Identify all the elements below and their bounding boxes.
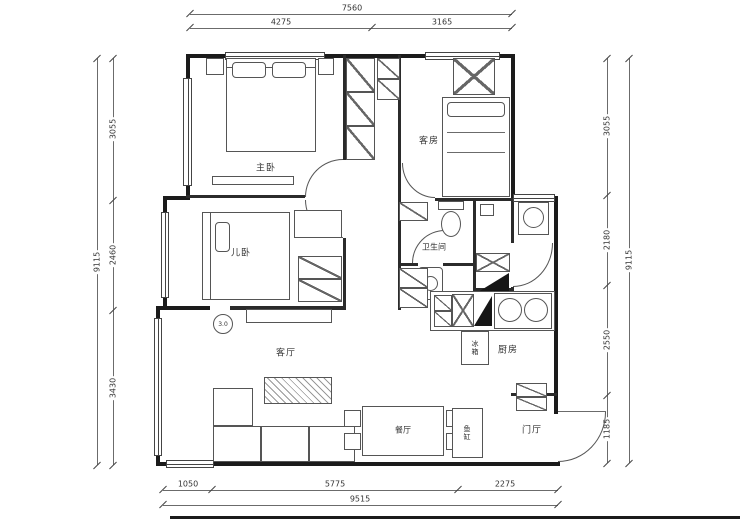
dim-label-bottom-seg2: 5775	[323, 480, 347, 489]
wall	[343, 238, 346, 308]
wall	[511, 54, 515, 200]
fish-tank-label: 鱼缸	[462, 425, 472, 441]
wardrobe	[298, 256, 342, 279]
stove-burner	[498, 298, 522, 322]
door-arc-master	[305, 159, 343, 197]
wardrobe	[346, 126, 375, 160]
hall-cabinet	[399, 288, 428, 308]
window	[513, 194, 555, 202]
fridge-label: 冰箱	[470, 340, 480, 356]
room-label-dining: 餐厅	[395, 425, 411, 436]
wardrobe	[346, 92, 375, 126]
kitchen-cabinet	[452, 294, 474, 327]
door-leaf-entry	[558, 411, 606, 412]
kitchen-cabinet	[434, 295, 452, 311]
dim-label-left-total: 9115	[93, 250, 102, 274]
window	[183, 78, 192, 186]
dim-label-right-total: 9115	[625, 248, 634, 272]
dim-line-top-total	[190, 14, 512, 15]
bed-line	[447, 152, 505, 153]
bench	[212, 176, 294, 185]
door-arc-entry	[558, 412, 606, 462]
pillow	[215, 222, 230, 252]
shoe-cabinet	[516, 397, 547, 411]
window	[154, 318, 162, 456]
stove-burner	[524, 298, 548, 322]
kids-desk	[294, 210, 342, 238]
sofa-chaise	[213, 388, 253, 426]
room-label-guest: 客房	[419, 134, 439, 147]
dim-label-top-seg2: 3165	[430, 18, 454, 27]
border-line	[170, 516, 740, 519]
dim-label-left-seg3: 3430	[109, 376, 118, 400]
dining-chair	[344, 433, 361, 450]
room-label-master: 主卧	[256, 161, 276, 174]
guest-cabinet	[453, 58, 495, 95]
dim-label-top-total: 7560	[340, 4, 364, 13]
dim-label-left-seg2: 2460	[109, 243, 118, 267]
wardrobe	[377, 79, 400, 100]
wall	[398, 263, 418, 266]
wardrobe	[377, 58, 400, 79]
dim-label-top-seg1: 4275	[269, 18, 293, 27]
window	[166, 460, 214, 468]
dim-label-bottom-seg3: 2275	[493, 480, 517, 489]
dim-line-top-segments	[190, 28, 512, 29]
dim-line-bottom-total	[163, 505, 558, 506]
dim-label-right-seg1: 3055	[603, 114, 612, 138]
wardrobe	[346, 58, 375, 92]
nightstand	[206, 58, 224, 75]
bed-line	[447, 132, 505, 133]
sofa-seat	[213, 426, 261, 462]
wall	[156, 306, 210, 310]
kitchen-cabinet	[434, 311, 452, 327]
room-label-bath: 卫生间	[422, 242, 446, 253]
hall-cabinet	[476, 253, 510, 272]
room-label-living: 客厅	[276, 346, 296, 359]
wall	[443, 263, 476, 266]
tv-console	[246, 309, 332, 323]
dim-label-bottom-total: 9515	[348, 495, 372, 504]
room-label-kitchen: 厨房	[498, 343, 518, 356]
dining-chair	[344, 410, 361, 427]
wall	[511, 198, 514, 243]
door-arc-guest	[402, 163, 435, 198]
wall	[156, 462, 560, 466]
coffee-table	[264, 377, 332, 404]
dim-label-right-seg3: 2550	[603, 328, 612, 352]
room-label-kids: 儿卧	[231, 246, 251, 259]
nightstand	[318, 58, 334, 75]
level-marker: 3.0	[213, 314, 233, 334]
pillow	[447, 102, 505, 117]
wall	[186, 195, 305, 198]
washing-machine-drum	[523, 207, 544, 228]
door-arc-balcony	[513, 243, 553, 287]
room-label-entry: 门厅	[522, 423, 542, 436]
wardrobe	[298, 279, 342, 302]
toilet-bowl	[441, 211, 461, 237]
dim-line-bottom-segments	[163, 490, 558, 491]
kids-bed-headboard	[202, 212, 211, 300]
dim-label-right-seg2: 2180	[603, 228, 612, 252]
hall-fixture	[480, 204, 494, 216]
pillow	[232, 62, 266, 78]
toilet-tank	[438, 201, 464, 210]
hall-cabinet	[399, 268, 428, 288]
pillow	[272, 62, 306, 78]
window	[161, 212, 169, 298]
sofa-seat	[261, 426, 309, 462]
floor-plan-canvas: 7560 4275 3165 1050 5775 2275 9515 9115 …	[0, 0, 740, 520]
dim-label-bottom-seg1: 1050	[176, 480, 200, 489]
dim-label-left-seg1: 3055	[109, 117, 118, 141]
bath-shelf	[399, 202, 428, 221]
shoe-cabinet	[516, 383, 547, 397]
